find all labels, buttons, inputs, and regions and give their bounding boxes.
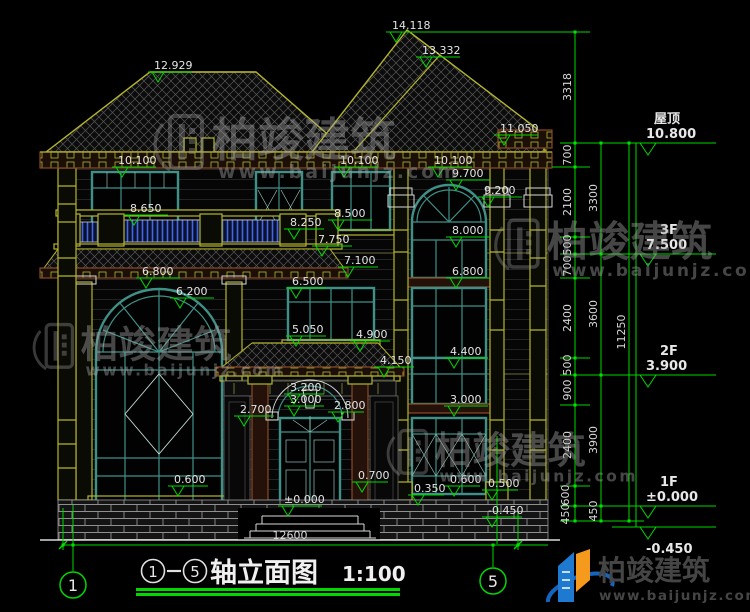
svg-text:8.500: 8.500 [334, 207, 366, 220]
svg-text:3.900: 3.900 [646, 359, 687, 374]
bay-roof-band [40, 249, 348, 278]
dim-inner-1: 2100 [561, 188, 574, 216]
svg-text:3.000: 3.000 [450, 393, 482, 406]
svg-text:6.800: 6.800 [452, 265, 484, 278]
dim-inner-9: 450 [559, 504, 572, 525]
svg-text:2.800: 2.800 [334, 399, 366, 412]
svg-text:7.750: 7.750 [318, 233, 350, 246]
svg-text:5.050: 5.050 [292, 323, 324, 336]
title-axis-start: 1 [148, 563, 158, 581]
drawing-title: 1 5 轴立面图 1:100 [136, 557, 406, 596]
svg-text:6.200: 6.200 [176, 285, 208, 298]
dim-middle-0: 3300 [587, 184, 600, 212]
svg-text:7.100: 7.100 [344, 254, 376, 267]
svg-text:14.118: 14.118 [392, 19, 431, 32]
svg-text:±0.000: ±0.000 [284, 493, 325, 506]
logo-company: 柏竣建筑 [598, 554, 710, 587]
elevation-drawing-canvas: 柏竣建筑 www.baijunjz.com [0, 0, 750, 612]
logo-website: www.baijunjz.com [599, 588, 750, 604]
axis-bubble-5: 5 [480, 568, 506, 594]
svg-text:13.332: 13.332 [422, 44, 461, 57]
svg-text:±0.000: ±0.000 [646, 490, 698, 505]
svg-text:8.650: 8.650 [130, 202, 162, 215]
title-axis-end: 5 [190, 563, 200, 581]
overall-width-label: 12600 [273, 529, 308, 542]
floor-marker-roof: 屋顶 10.800 [612, 112, 716, 155]
dim-inner-8: 600 [559, 485, 572, 506]
company-logo: 柏竣建筑 www.baijunjz.com [548, 549, 750, 604]
cad-elevation-screenshot: 柏竣建筑 www.baijunjz.com [0, 0, 750, 612]
dim-outer-1: 11250 [615, 315, 628, 350]
axis-bubble-1: 1 [60, 572, 86, 598]
svg-text:2.700: 2.700 [240, 403, 272, 416]
svg-text:1: 1 [68, 576, 78, 595]
svg-text:4.150: 4.150 [380, 354, 412, 367]
svg-text:6.800: 6.800 [142, 265, 174, 278]
svg-text:10.800: 10.800 [646, 127, 696, 142]
dim-outer-0: 3318 [561, 73, 574, 101]
title-underline-1 [136, 588, 400, 591]
svg-text:11.050: 11.050 [500, 122, 539, 135]
svg-text:8.000: 8.000 [452, 224, 484, 237]
svg-text:0.700: 0.700 [358, 469, 390, 482]
svg-text:3.000: 3.000 [290, 393, 322, 406]
svg-text:4.400: 4.400 [450, 345, 482, 358]
title-text: 轴立面图 [210, 557, 318, 589]
svg-text:-0.450: -0.450 [488, 504, 523, 517]
dim-middle-1: 3600 [587, 300, 600, 328]
svg-text:2F: 2F [660, 344, 678, 359]
dim-middle-3: 450 [587, 501, 600, 522]
logo-building-icon [558, 552, 574, 602]
svg-text:6.500: 6.500 [292, 275, 324, 288]
svg-text:9.200: 9.200 [484, 184, 516, 197]
svg-text:12.929: 12.929 [154, 59, 193, 72]
dim-inner-4: 2400 [561, 304, 574, 332]
title-scale: 1:100 [342, 562, 406, 586]
svg-text:0.600: 0.600 [174, 473, 206, 486]
svg-text:5: 5 [488, 572, 498, 591]
dim-inner-5: 500 [561, 355, 574, 376]
dim-middle-2: 3900 [587, 426, 600, 454]
svg-text:1F: 1F [660, 475, 678, 490]
dim-inner-6: 900 [561, 380, 574, 401]
dim-inner-0: 700 [561, 145, 574, 166]
svg-text:屋顶: 屋顶 [654, 112, 680, 127]
svg-text:8.250: 8.250 [290, 216, 322, 229]
title-underline-2 [136, 593, 400, 596]
floor-marker-minus-0450: -0.450 [612, 527, 716, 557]
svg-text:4.900: 4.900 [356, 328, 388, 341]
svg-text:10.100: 10.100 [118, 154, 157, 167]
